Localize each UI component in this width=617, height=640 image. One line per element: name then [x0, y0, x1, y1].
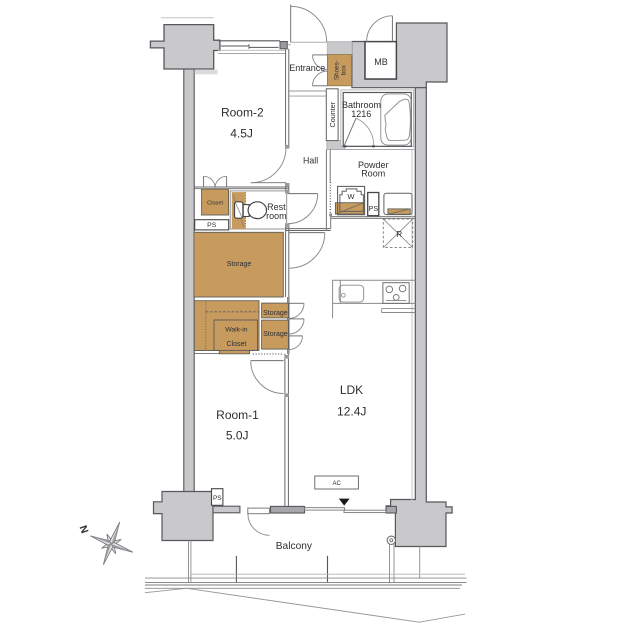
svg-text:4.5J: 4.5J [230, 126, 253, 140]
svg-text:W: W [348, 192, 355, 201]
svg-text:room: room [266, 211, 287, 221]
svg-text:PS: PS [207, 222, 217, 229]
svg-text:Balcony: Balcony [276, 541, 313, 552]
svg-text:Room: Room [361, 169, 385, 179]
svg-text:1216: 1216 [351, 109, 371, 119]
svg-text:R: R [396, 230, 402, 239]
svg-text:Room-2: Room-2 [221, 106, 264, 120]
svg-text:Entrance: Entrance [289, 63, 325, 73]
svg-text:12.4J: 12.4J [337, 404, 366, 418]
svg-text:Counter: Counter [328, 101, 337, 127]
svg-text:Closet: Closet [207, 200, 223, 206]
svg-text:Storage: Storage [227, 261, 252, 268]
svg-text:PS: PS [213, 495, 222, 502]
svg-text:Hall: Hall [303, 155, 318, 165]
svg-text:N: N [78, 523, 92, 534]
svg-text:5.0J: 5.0J [226, 429, 249, 443]
svg-text:LDK: LDK [340, 383, 363, 397]
svg-text:Shoes-: Shoes- [333, 60, 340, 80]
svg-text:AC: AC [333, 481, 342, 487]
svg-text:Room-1: Room-1 [216, 408, 259, 422]
svg-text:MB: MB [374, 57, 388, 67]
svg-text:Closet: Closet [226, 341, 246, 348]
svg-text:box: box [340, 64, 347, 75]
svg-text:Walk-in: Walk-in [225, 326, 248, 333]
svg-text:PS: PS [369, 204, 379, 213]
svg-text:Storage: Storage [263, 310, 288, 317]
svg-text:Storage: Storage [263, 331, 288, 338]
